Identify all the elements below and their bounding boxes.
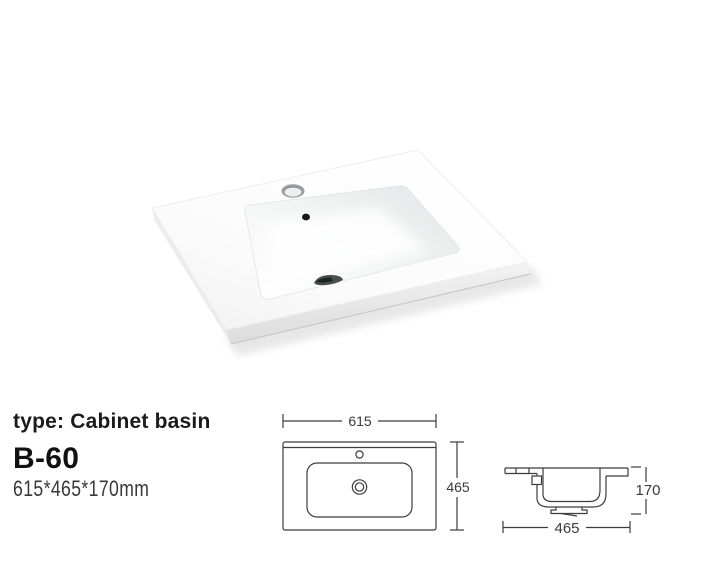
section-fixing-lug <box>532 476 542 485</box>
overflow-hole <box>302 214 310 221</box>
section-bowl-inner-wall <box>543 468 600 502</box>
plan-outline <box>283 414 464 530</box>
faucet-hole <box>282 184 305 198</box>
plan-bowl <box>307 463 412 517</box>
product-info: type: Cabinet basin B-60 615*465*170mm <box>13 409 263 501</box>
plan-drain-outer <box>352 480 366 494</box>
section-depth-dim-label: 465 <box>554 520 579 537</box>
plan-width-dim-label: 615 <box>348 413 372 429</box>
product-dimensions: 615*465*170mm <box>13 477 213 501</box>
plan-depth-dim-label: 465 <box>446 479 470 495</box>
plan-view-drawing: 615 465 <box>260 395 470 545</box>
product-type-label: type: Cabinet basin <box>13 409 263 435</box>
product-sheet: type: Cabinet basin B-60 615*465*170mm <box>0 0 714 573</box>
plan-drain-inner <box>355 483 363 491</box>
product-model: B-60 <box>13 443 263 475</box>
product-photo <box>130 135 580 360</box>
plan-faucet-hole <box>356 451 363 458</box>
section-view-drawing: 170 465 <box>488 438 668 543</box>
section-drain-trap <box>551 507 587 514</box>
section-height-dim-label: 170 <box>635 482 660 499</box>
